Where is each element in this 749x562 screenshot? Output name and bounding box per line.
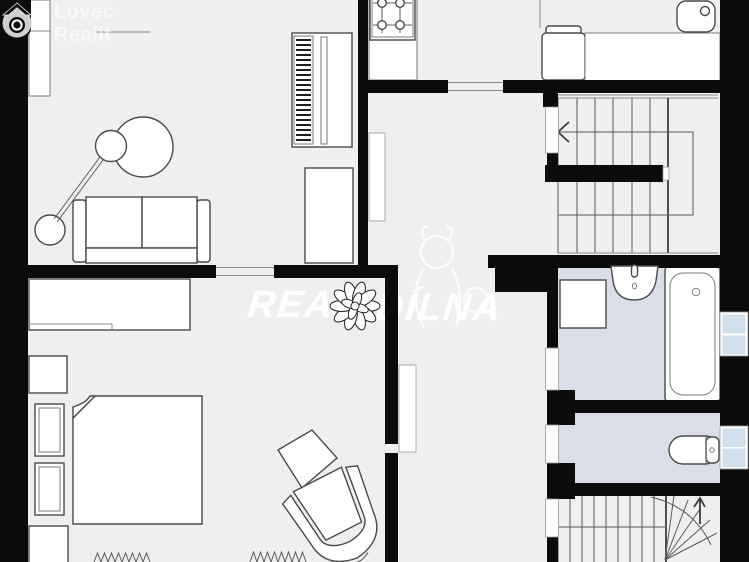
shower-cabin [560, 280, 606, 328]
wall-stub [547, 537, 558, 562]
wall-exterior-left [0, 0, 28, 562]
wall-stub [543, 93, 558, 107]
staircase-lower-icon [558, 496, 717, 562]
kitchen-fixtures [369, 0, 417, 80]
house-lens-icon [0, 0, 46, 46]
wall-living-bedroom [274, 265, 398, 278]
wall-stair-divider [545, 165, 663, 182]
nightstand [35, 463, 64, 515]
wall-living-bedroom [28, 265, 216, 278]
burner [396, 0, 405, 7]
dresser [29, 356, 67, 393]
doorway-bathroom [546, 348, 559, 390]
doorway-wc [546, 425, 559, 463]
stove-icon [370, 0, 415, 40]
radiator-icon [250, 552, 306, 562]
boiler-icon [542, 26, 585, 80]
nightstand [35, 404, 64, 456]
burner [378, 21, 387, 30]
wall-wc-stairs [558, 483, 720, 496]
logo-text-line1: Lovec [54, 1, 114, 24]
cabinet [305, 168, 353, 263]
doorway-stairs [546, 499, 559, 537]
sofa-icon [73, 197, 210, 263]
floorplan-canvas: REAL DÍLNA [0, 0, 749, 562]
wall-hall-stairs [503, 80, 722, 93]
wall-stub [547, 152, 558, 165]
utility-counter [585, 33, 720, 82]
wall-kitchen-hall [368, 80, 448, 93]
potted-plant-icon [330, 281, 380, 332]
wall-bedroom-hall [385, 265, 398, 444]
logo-text-line2: Realit [54, 24, 114, 47]
dresser [29, 526, 68, 562]
wall-hall-bathroom [547, 292, 558, 348]
radiator-icon [94, 553, 150, 562]
piano-icon [292, 33, 352, 147]
wall-living-kitchen [358, 0, 368, 265]
window-icon [720, 312, 748, 356]
burner [378, 0, 387, 7]
wall-bedroom-hall [385, 453, 398, 562]
bedroom-fixtures [29, 279, 397, 562]
burner [396, 21, 405, 30]
bathtub-icon [665, 267, 720, 401]
toilet-icon [669, 436, 719, 464]
utility-fixtures [540, 0, 720, 82]
window-icon [720, 426, 748, 469]
double-bed-icon [73, 396, 202, 524]
open-door-leaf [369, 133, 385, 221]
kitchen-sink-icon [677, 1, 715, 32]
open-door-leaf [399, 365, 416, 452]
wall-stub [495, 268, 558, 292]
wall-hall-bathroom [488, 255, 722, 268]
doorway [546, 107, 559, 153]
agency-logo: Lovec Realit [0, 0, 230, 60]
floorplan-drawing [0, 0, 749, 562]
wardrobe [29, 279, 190, 330]
wall-bath-wc [558, 400, 720, 413]
wall-exterior-right [720, 0, 749, 562]
